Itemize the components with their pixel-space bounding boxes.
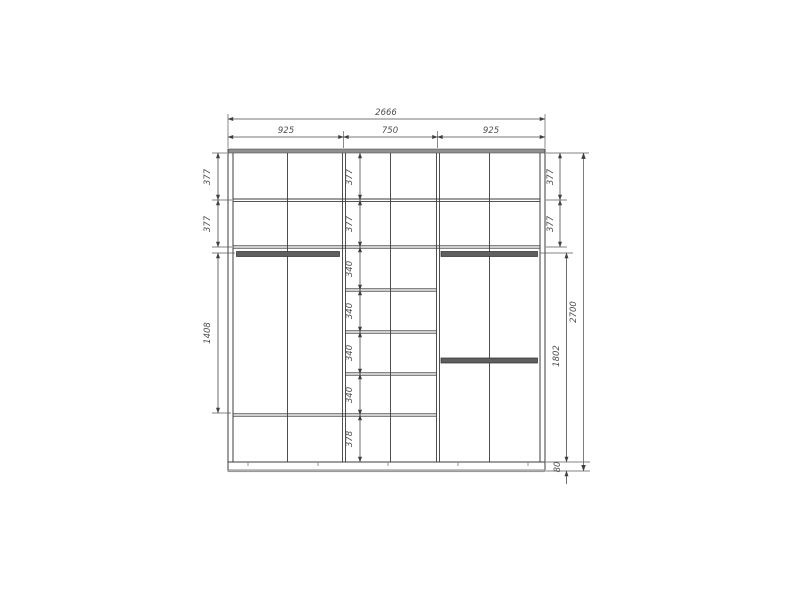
dim-section-left-width: 925 [278,126,294,136]
plinth-base [228,470,545,472]
extension-lines [212,114,590,471]
dim-left-row2: 377 [203,215,213,232]
dim-center-row1: 377 [345,168,355,185]
dim-center-row2: 377 [345,215,355,232]
dim-center-row3: 340 [345,261,355,277]
top-panel [228,149,545,153]
wardrobe-dimension-drawing: 2666 925 750 925 377 377 1408 377 377 [0,0,800,600]
dim-left-row1: 377 [203,168,213,185]
dim-overall-height: 2700 [569,301,579,323]
cabinet-structure [228,149,545,472]
dim-section-center-width: 750 [382,126,398,136]
hanging-rod-right-upper [441,252,538,257]
dim-section-right-width: 925 [483,126,499,136]
drawing-canvas: 2666 925 750 925 377 377 1408 377 377 [0,0,800,600]
dim-right-row1: 377 [546,168,556,185]
dim-plinth-height: 80 [553,462,563,473]
hanging-rod-left [237,252,340,257]
dim-right-lower-height: 1802 [552,345,562,367]
hanging-rod-right-lower [441,358,538,363]
dim-center-row5: 340 [345,345,355,361]
dim-center-row6: 340 [345,387,355,403]
dim-center-row4: 340 [345,303,355,319]
dimension-annotations: 2666 925 750 925 377 377 1408 377 377 [203,108,584,484]
dim-right-row2: 377 [546,215,556,232]
dim-overall-width: 2666 [375,108,397,118]
dim-left-hanging-height: 1408 [203,322,213,344]
dim-center-row7: 378 [345,430,355,447]
plinth-feet-ticks [248,462,528,466]
